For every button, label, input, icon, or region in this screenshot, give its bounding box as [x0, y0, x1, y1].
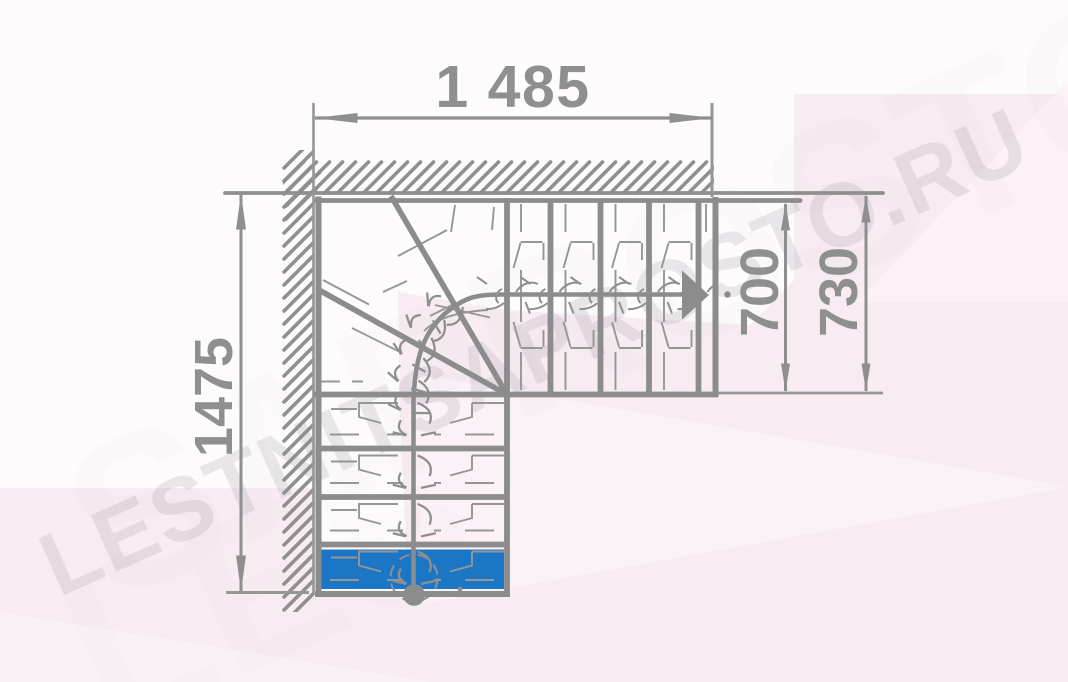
- svg-text:1 485: 1 485: [435, 54, 590, 120]
- svg-text:1475: 1475: [184, 337, 244, 457]
- svg-text:730: 730: [809, 247, 869, 337]
- svg-text:700: 700: [730, 247, 790, 337]
